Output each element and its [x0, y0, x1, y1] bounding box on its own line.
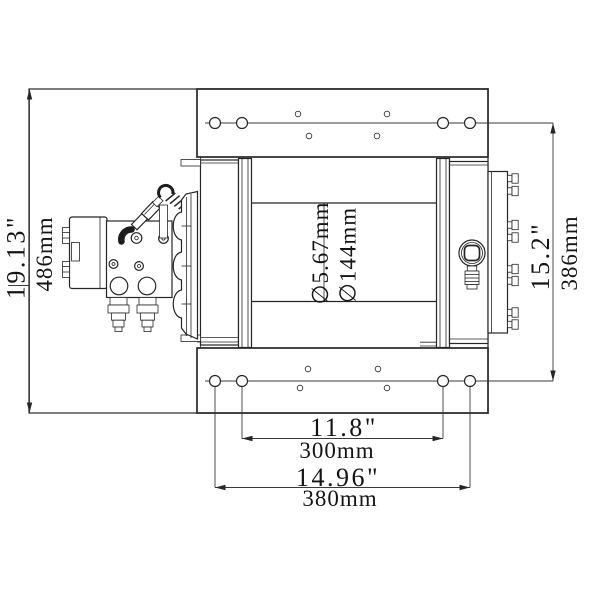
hole-small	[375, 366, 381, 372]
bottom-fitting-right	[137, 298, 158, 332]
block-bolt	[135, 262, 144, 271]
arrowhead	[433, 436, 444, 441]
housing-step	[72, 243, 80, 262]
left-drum-support	[201, 160, 239, 345]
hose-hook	[159, 185, 173, 197]
fitting-collar	[112, 313, 126, 320]
right-tie-bar	[437, 159, 450, 348]
winch-technical-drawing: 19.13" 486mm ∅5.67mm ∅144mm 15.2" 386mm …	[0, 0, 600, 600]
fitting-neck	[467, 266, 476, 271]
bolt	[508, 175, 513, 181]
arrowhead	[460, 485, 471, 490]
hole-small	[306, 133, 312, 139]
bolt	[508, 321, 513, 327]
block-bolt	[109, 260, 118, 269]
hole	[237, 376, 248, 387]
bolt-head	[512, 220, 518, 229]
hole	[438, 118, 449, 129]
fitting-nut	[110, 298, 127, 306]
bolt-head	[512, 186, 518, 195]
housing-bolts	[508, 174, 519, 329]
hydraulic-port	[110, 277, 128, 295]
fitting-tip	[144, 327, 151, 332]
block-bolt	[131, 233, 142, 244]
bolt	[508, 188, 513, 194]
knob-square-drive	[465, 246, 480, 261]
hole-small	[297, 385, 303, 391]
flange-scalloped-edge	[173, 192, 197, 340]
bolt	[508, 266, 513, 272]
arrowhead	[550, 123, 555, 134]
dim-mount-vertical-inches: 15.2"	[526, 222, 555, 291]
fitting-nut	[108, 305, 129, 313]
dim-drum-label-a: ∅5.67mm	[308, 201, 333, 304]
hole-small	[295, 111, 301, 117]
fitting-nut	[139, 298, 156, 306]
motor-tab	[63, 262, 70, 278]
fitting-tip	[115, 327, 122, 332]
hydraulic-port	[138, 277, 156, 295]
hole-small	[374, 133, 380, 139]
fitting-collar	[141, 313, 155, 320]
bolt-head	[512, 276, 518, 285]
arrowhead	[550, 371, 555, 382]
hole-small	[305, 366, 311, 372]
dim-overall-metric: 486mm	[32, 216, 57, 291]
drum-flange-ribbed	[173, 192, 197, 340]
bolt-head	[512, 320, 518, 329]
fitting-body	[142, 320, 153, 327]
hole	[465, 376, 476, 387]
hole-small	[384, 385, 390, 391]
fitting-body	[113, 320, 124, 327]
clutch-housing-body	[488, 172, 508, 334]
arrowhead	[242, 436, 253, 441]
bottom-fitting-left	[108, 298, 129, 332]
arrowhead	[27, 89, 32, 100]
bolt-head	[512, 174, 518, 183]
hole	[210, 376, 221, 387]
dim-span-inner-metric: 300mm	[299, 438, 374, 463]
dim-mount-vertical-metric: 386mm	[557, 215, 582, 290]
arrowhead	[27, 403, 32, 414]
drawing-canvas: 19.13" 486mm ∅5.67mm ∅144mm 15.2" 386mm …	[0, 0, 600, 600]
bolt	[508, 234, 513, 240]
bolt	[508, 222, 513, 228]
hole	[210, 118, 221, 129]
flange-lip-top	[181, 160, 201, 167]
left-tie-bar	[239, 159, 252, 348]
bolt-head	[512, 233, 518, 242]
bolt	[508, 309, 513, 315]
hydraulic-motor	[63, 185, 198, 339]
motor-tab	[63, 228, 70, 244]
dim-span-outer-metric: 380mm	[302, 486, 377, 511]
hole	[237, 118, 248, 129]
hole-small	[384, 111, 390, 117]
hole	[465, 118, 476, 129]
fitting-tip	[467, 285, 477, 290]
bolt-head	[512, 308, 518, 317]
hole	[438, 376, 449, 387]
dim-overall-inches: 19.13"	[2, 215, 31, 299]
arrowhead	[215, 485, 226, 490]
dim-drum-label-b: ∅144mm	[336, 207, 361, 303]
bolt	[508, 278, 513, 284]
fitting-nut	[137, 305, 158, 313]
motor-mount-lug	[160, 205, 168, 238]
bolt-head	[512, 264, 518, 273]
